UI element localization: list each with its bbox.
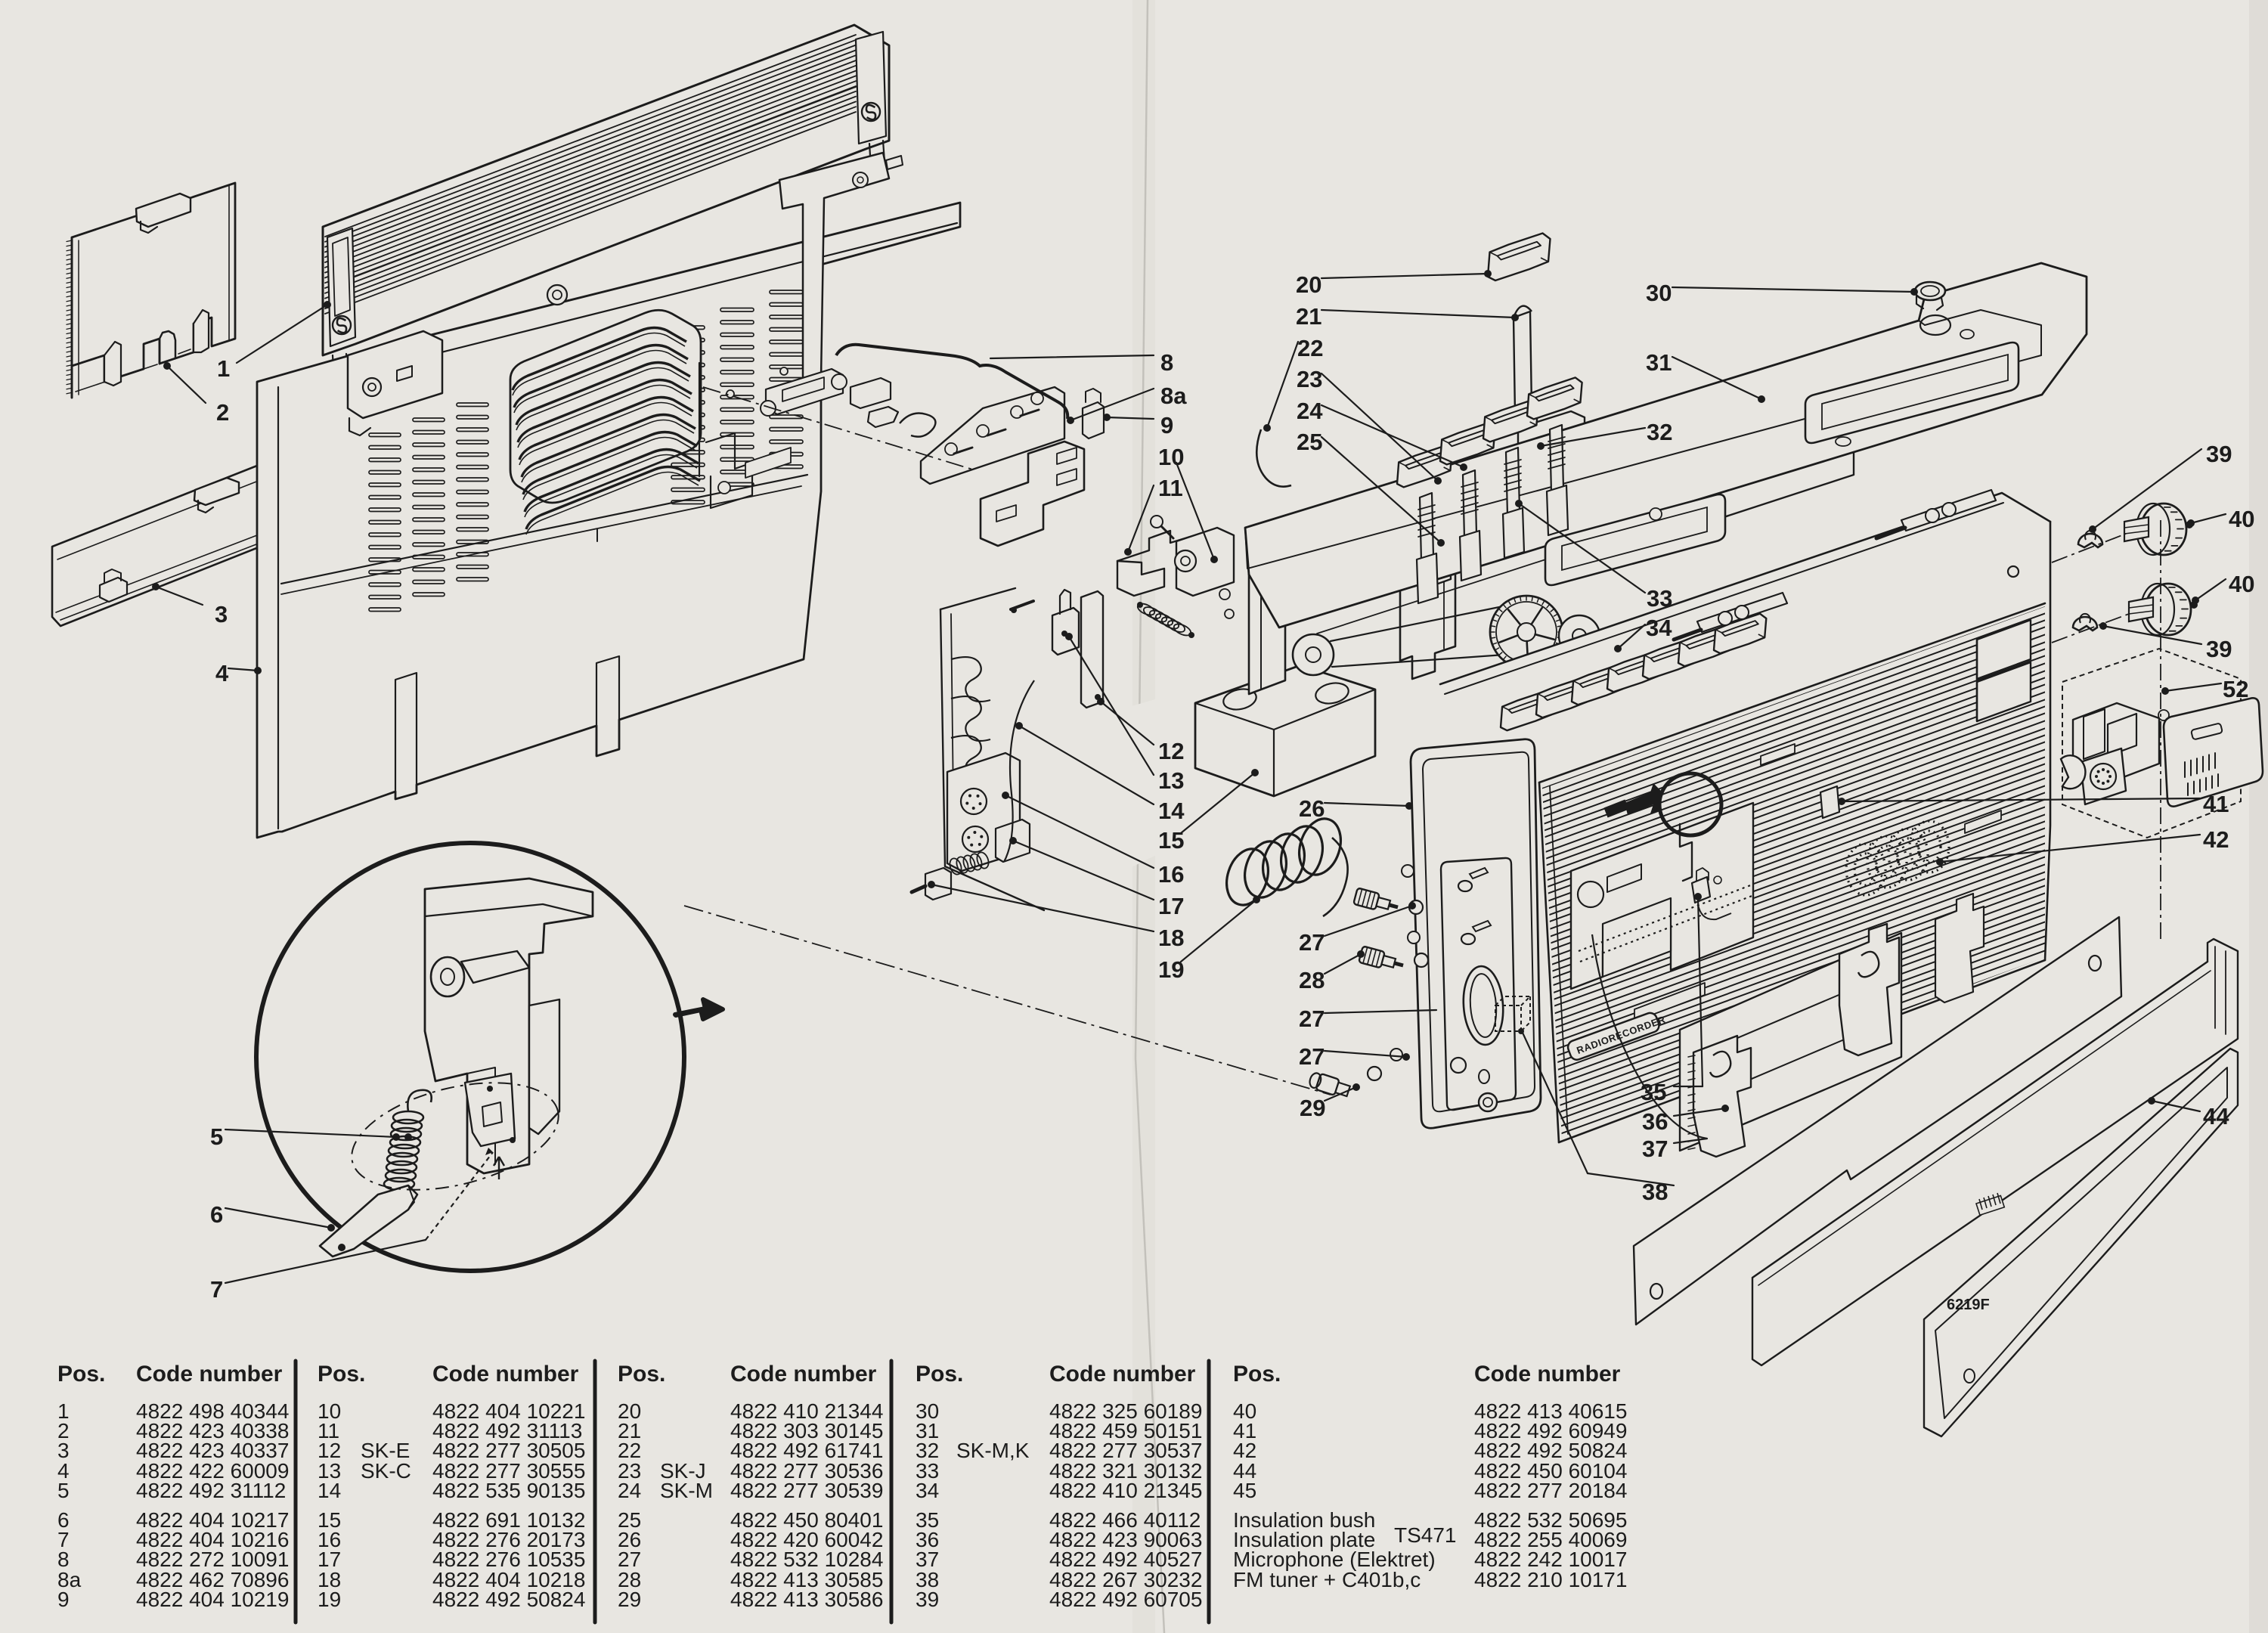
svg-text:29: 29 [618,1588,641,1611]
svg-text:4822 492 50824: 4822 492 50824 [432,1588,585,1611]
svg-text:4822 277 30539: 4822 277 30539 [730,1479,883,1502]
svg-text:4822 492 31112: 4822 492 31112 [136,1479,286,1502]
svg-text:8a: 8a [1160,383,1187,409]
svg-text:4822 413 30586: 4822 413 30586 [730,1588,883,1611]
svg-text:Code number: Code number [432,1362,579,1387]
svg-text:39: 39 [2206,636,2232,662]
svg-text:8: 8 [1160,349,1173,376]
svg-text:12: 12 [1158,738,1184,764]
svg-text:1: 1 [217,355,230,382]
svg-text:27: 27 [1299,929,1325,956]
svg-text:Pos.: Pos. [618,1362,665,1387]
svg-text:40: 40 [2229,506,2254,532]
svg-text:35: 35 [1641,1079,1666,1105]
svg-text:39: 39 [2206,441,2232,467]
svg-text:20: 20 [1296,271,1321,298]
svg-text:10: 10 [1158,444,1184,470]
svg-text:16: 16 [1158,861,1184,888]
svg-text:44: 44 [2203,1103,2229,1129]
svg-text:Pos.: Pos. [916,1362,963,1387]
svg-text:6219F: 6219F [1947,1297,1990,1313]
svg-text:4822 492 60705: 4822 492 60705 [1049,1588,1202,1611]
svg-text:Pos.: Pos. [57,1362,105,1387]
svg-text:13: 13 [1158,767,1184,794]
svg-text:9: 9 [57,1588,70,1611]
svg-text:19: 19 [1158,956,1184,983]
svg-text:6: 6 [210,1201,223,1228]
svg-text:5: 5 [57,1479,70,1502]
svg-text:39: 39 [916,1588,939,1611]
svg-text:14: 14 [1158,798,1185,824]
svg-text:34: 34 [916,1479,939,1502]
svg-text:41: 41 [2203,791,2229,817]
svg-text:32: 32 [1647,419,1672,445]
svg-text:42: 42 [2203,826,2229,853]
svg-text:Code number: Code number [1474,1362,1621,1387]
svg-text:34: 34 [1646,615,1672,641]
svg-text:4822 210 10171: 4822 210 10171 [1474,1568,1627,1591]
svg-text:4822 535 90135: 4822 535 90135 [432,1479,585,1502]
svg-text:29: 29 [1300,1095,1325,1121]
svg-text:45: 45 [1233,1479,1256,1502]
svg-text:24: 24 [1297,398,1323,424]
svg-text:5: 5 [210,1123,223,1150]
svg-text:TS471: TS471 [1394,1523,1457,1547]
svg-text:4822 277 20184: 4822 277 20184 [1474,1479,1627,1502]
svg-text:27: 27 [1299,1006,1325,1032]
svg-text:Pos.: Pos. [1233,1362,1281,1387]
svg-text:18: 18 [1158,925,1184,951]
svg-text:30: 30 [1646,280,1672,306]
svg-text:27: 27 [1299,1043,1325,1070]
svg-text:SK-M: SK-M [660,1479,713,1502]
svg-text:SK-C: SK-C [361,1459,411,1483]
svg-text:14: 14 [318,1479,341,1502]
svg-text:38: 38 [1642,1179,1668,1205]
svg-text:31: 31 [1646,349,1672,376]
svg-text:7: 7 [210,1276,223,1303]
svg-text:28: 28 [1299,967,1325,993]
svg-text:SK-M,K: SK-M,K [956,1439,1030,1462]
svg-text:23: 23 [1297,366,1322,392]
svg-text:2: 2 [216,399,229,426]
svg-text:24: 24 [618,1479,641,1502]
svg-text:9: 9 [1160,412,1173,438]
svg-text:Code number: Code number [730,1362,877,1387]
svg-text:19: 19 [318,1588,341,1611]
svg-text:33: 33 [1647,585,1672,612]
svg-text:11: 11 [1158,475,1183,501]
svg-text:36: 36 [1642,1108,1668,1135]
svg-text:37: 37 [1642,1136,1668,1162]
svg-text:17: 17 [1158,893,1184,919]
svg-text:21: 21 [1296,303,1321,330]
svg-text:15: 15 [1158,827,1184,854]
svg-text:25: 25 [1297,429,1322,455]
svg-text:4822 410 21345: 4822 410 21345 [1049,1479,1202,1502]
svg-text:26: 26 [1299,795,1325,822]
svg-text:FM tuner + C401b,c: FM tuner + C401b,c [1233,1568,1421,1591]
svg-text:Code number: Code number [1049,1362,1196,1387]
svg-text:4: 4 [215,660,229,686]
svg-text:Code number: Code number [136,1362,283,1387]
svg-text:Pos.: Pos. [318,1362,365,1387]
svg-text:3: 3 [215,601,228,627]
svg-text:4822 404 10219: 4822 404 10219 [136,1588,289,1611]
svg-text:22: 22 [1297,335,1323,361]
svg-text:40: 40 [2229,571,2254,597]
svg-text:52: 52 [2223,676,2248,702]
